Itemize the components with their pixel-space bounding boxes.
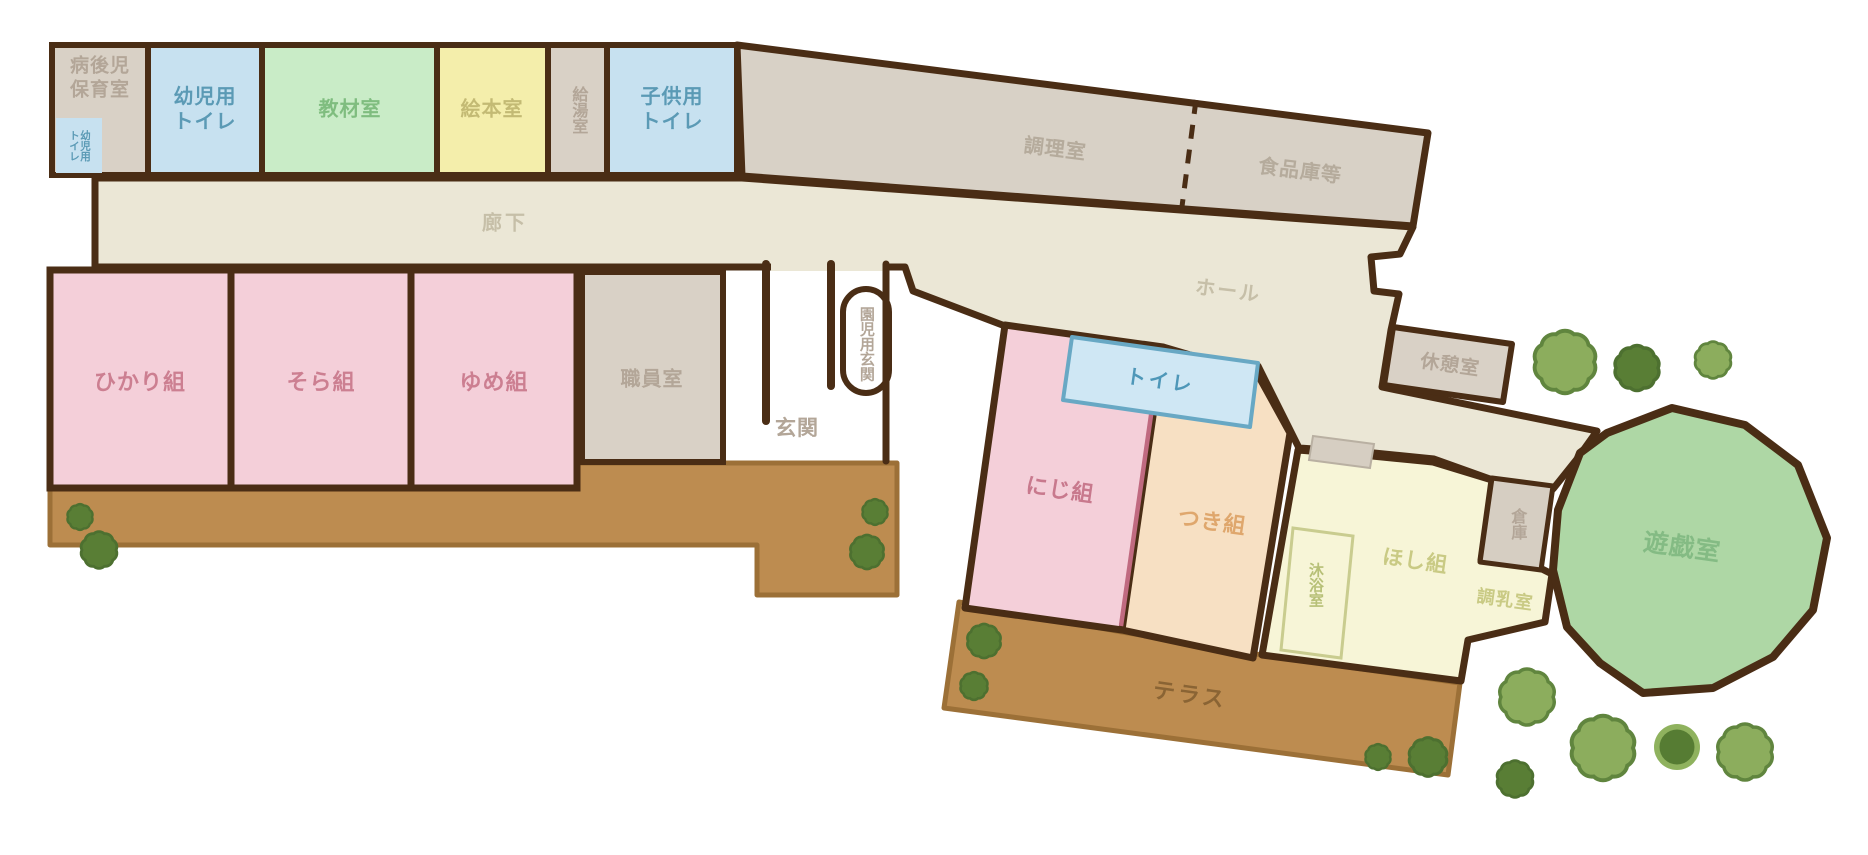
room-kyutoshitsu-label: 給湯室 — [569, 86, 586, 134]
tree-icon — [1572, 716, 1635, 780]
tree-icon — [1718, 724, 1772, 780]
floor-plan: 病後児 保育室 幼児用トイレ 幼児用 トイレ 教材室 絵本室 給湯室 子供用 ト… — [0, 0, 1868, 855]
room-mokuyokushitsu-label: 沐浴室 — [1307, 563, 1323, 608]
room-kodomoyo-toilet-label: 子供用 トイレ — [641, 85, 704, 135]
tree-icon — [81, 532, 117, 569]
tree-icon — [1654, 724, 1700, 770]
room-ehonshitsu-label: 絵本室 — [461, 98, 524, 123]
tree-icon — [850, 535, 883, 569]
room-sora-label: そら組 — [286, 368, 355, 396]
tree-icon — [961, 672, 988, 700]
room-yoji-toilet-label: 幼児用 トイレ — [174, 85, 237, 135]
tree-icon — [1535, 331, 1596, 393]
tree-icon — [1695, 342, 1731, 379]
tree-icon — [1497, 761, 1533, 798]
tree-icon — [1409, 738, 1447, 777]
room-byogoji-label: 病後児 保育室 — [70, 54, 130, 102]
enjiyo-genkan-label: 園児用玄関 — [858, 307, 874, 382]
room-shokuinshitsu-label: 職員室 — [621, 368, 684, 393]
room-yoji-toilet-small-label: 幼児用トイレ — [68, 128, 90, 164]
floor-plan-canvas — [0, 0, 1868, 855]
tree-icon — [967, 624, 1000, 658]
tree-icon — [1365, 744, 1390, 770]
room-soko-label: 倉庫 — [1508, 508, 1525, 540]
corridor-label: 廊下 — [482, 212, 528, 237]
genkan-label: 玄関 — [775, 416, 819, 442]
room-kyozaishitsu-label: 教材室 — [319, 98, 382, 123]
room-hikari-label: ひかり組 — [94, 368, 186, 396]
tree-icon — [1500, 669, 1554, 725]
tree-icon — [67, 504, 92, 530]
tree-icon — [862, 499, 887, 525]
room-yume-label: ゆめ組 — [459, 368, 528, 396]
tree-icon — [1615, 345, 1659, 390]
